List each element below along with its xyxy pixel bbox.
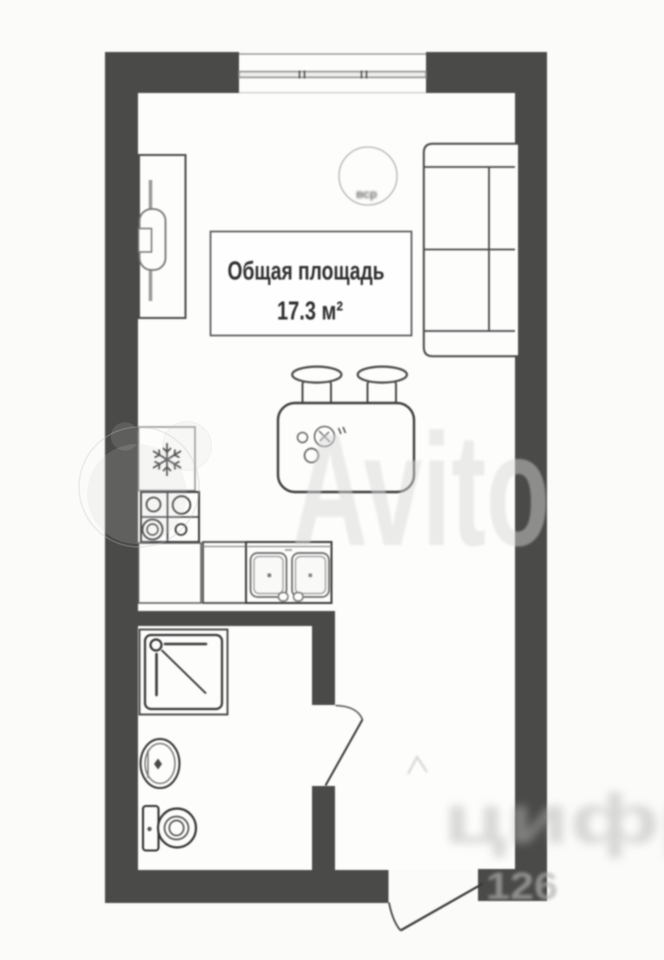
svg-text:Avito: Avito [292,400,550,579]
svg-text:цифр: цифр [443,780,664,858]
svg-text:126: 126 [486,866,558,908]
